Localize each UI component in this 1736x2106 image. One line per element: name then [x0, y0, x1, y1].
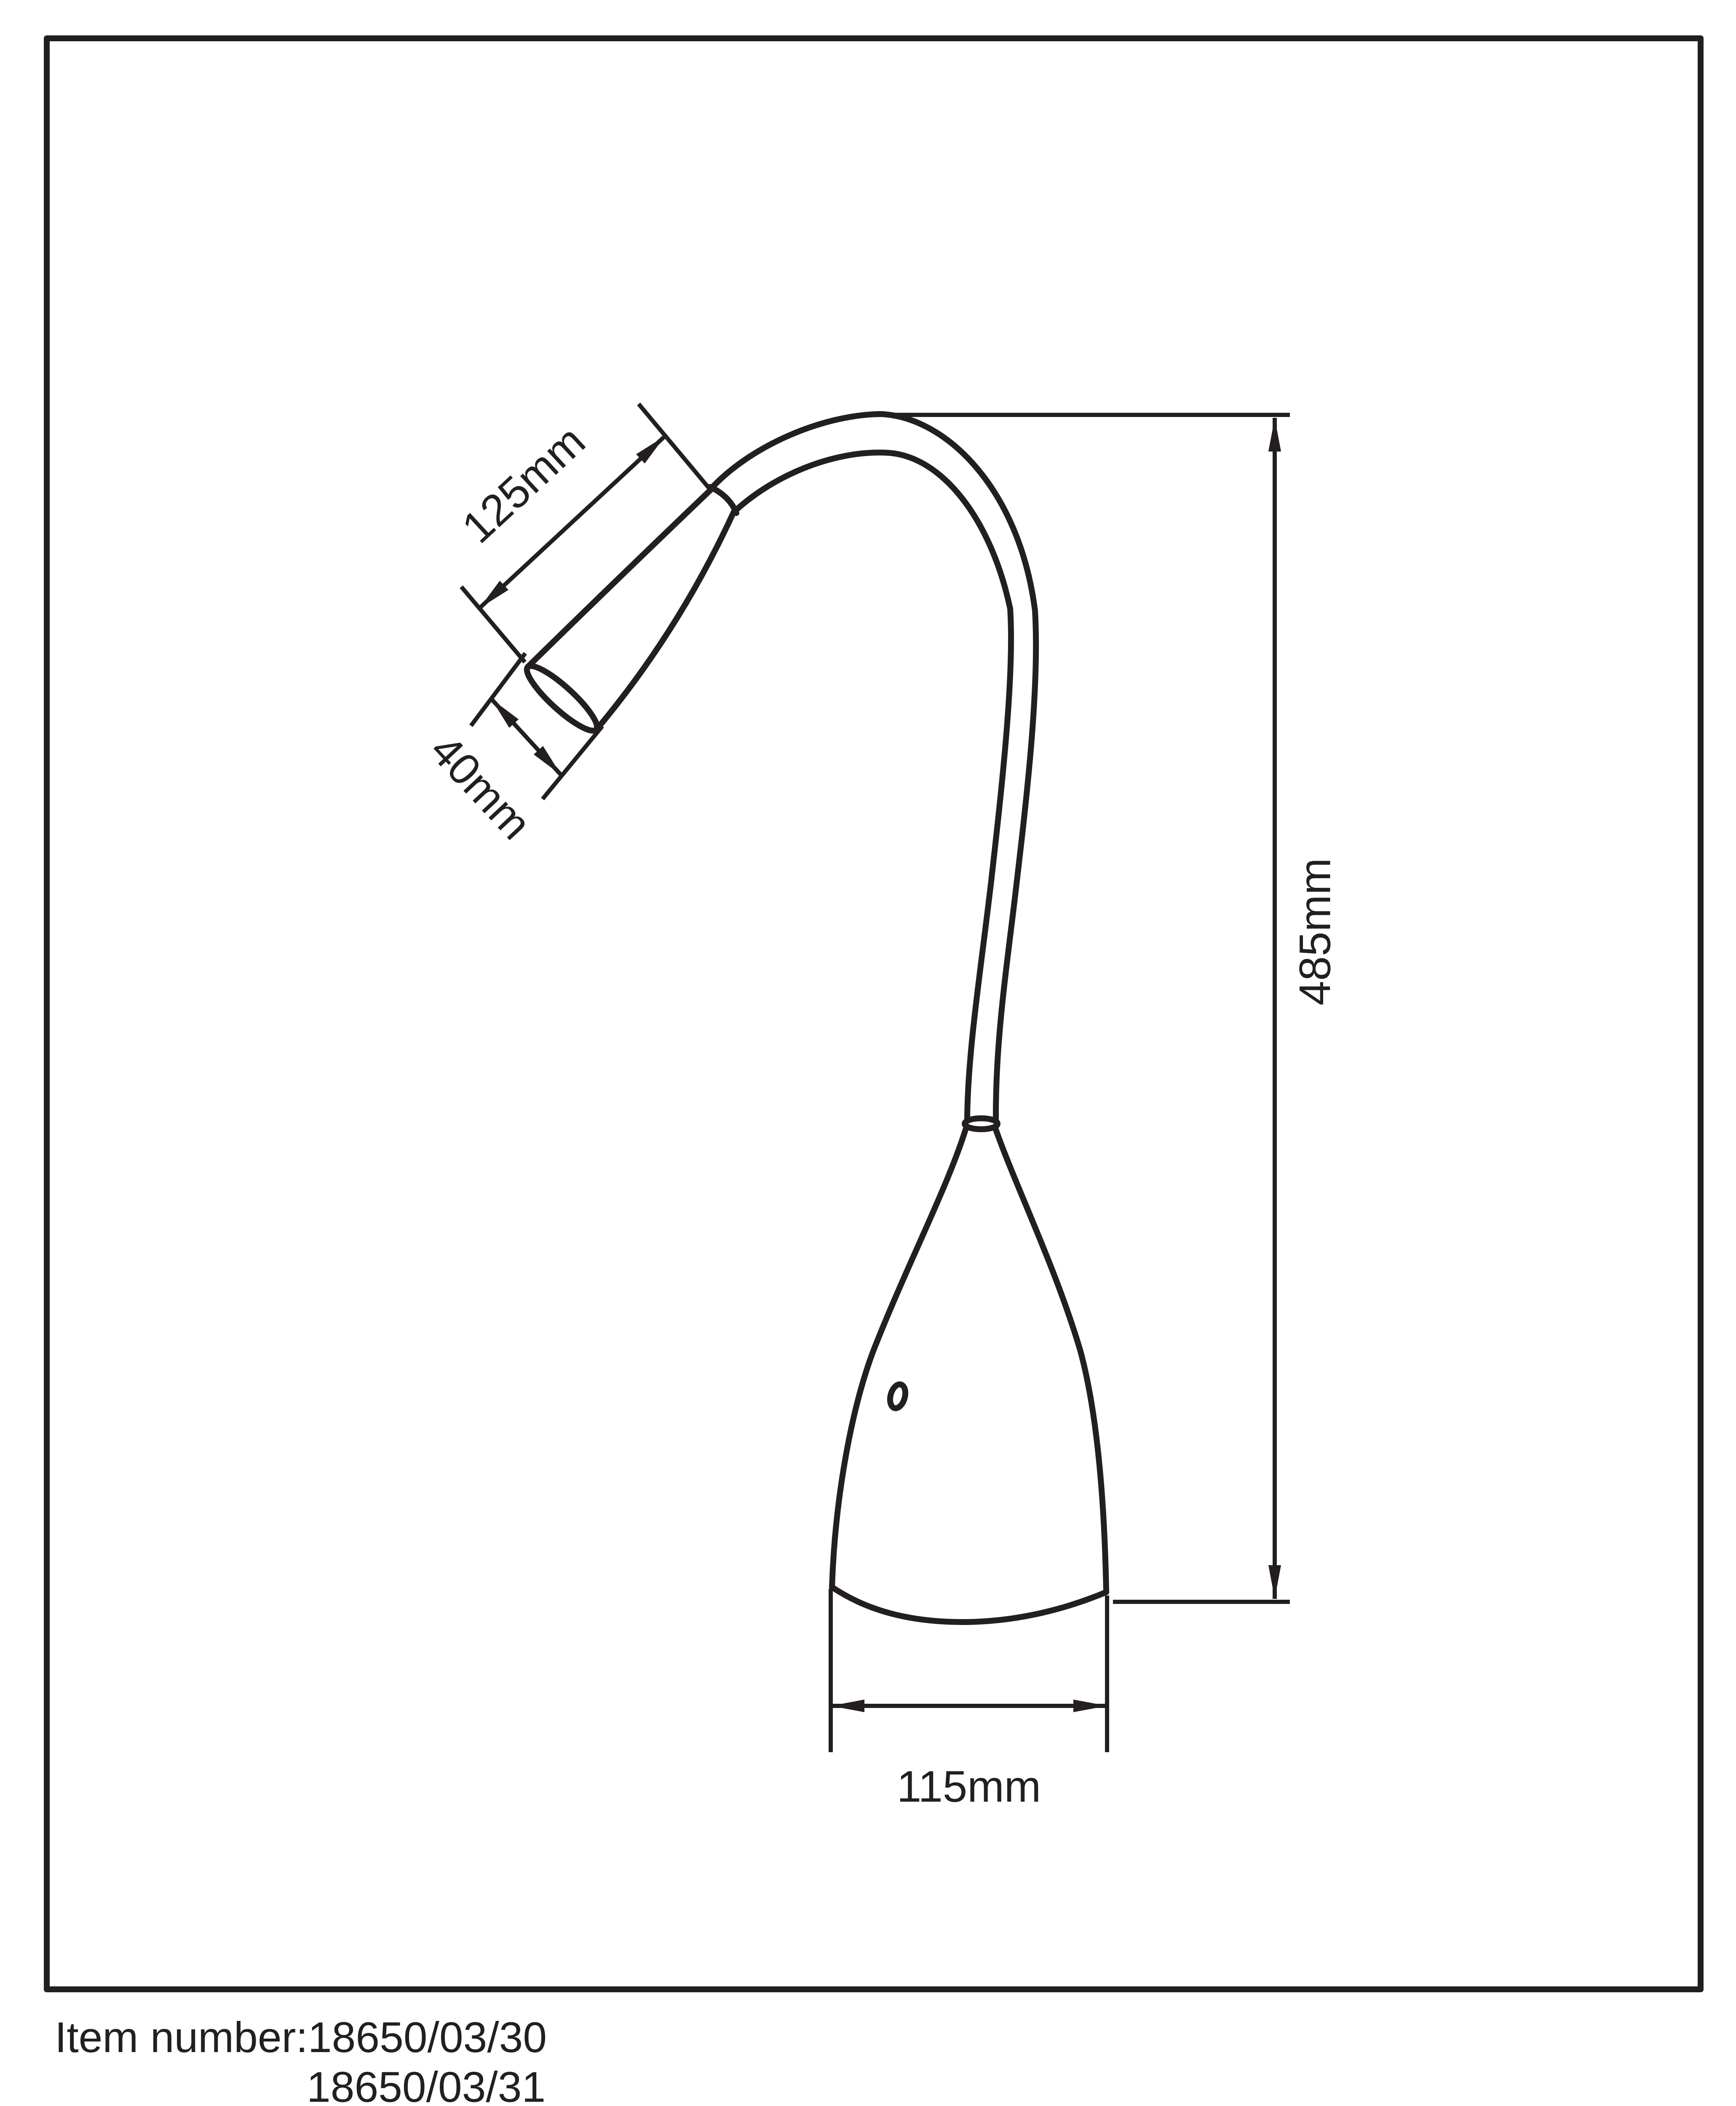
- base-bottom-outline: [832, 1587, 1106, 1622]
- head-diameter-label: 40mm: [421, 725, 541, 849]
- head-length-label: 125mm: [453, 416, 594, 553]
- lamp-head-upper-edge: [528, 489, 711, 667]
- extension-line: [471, 653, 525, 726]
- arrowhead: [1268, 1565, 1281, 1599]
- touch-switch-icon: [888, 1383, 908, 1410]
- dimension-total-height: 485mm: [873, 415, 1340, 1602]
- technical-drawing-canvas: 125mm 40mm 485mm 115mm: [0, 0, 1736, 2106]
- gooseneck-outer-line: [711, 414, 1036, 1121]
- footer: Item number:18650/03/30 18650/03/31: [55, 2013, 547, 2106]
- lamp-line-art: [520, 414, 1106, 1622]
- arrowhead: [1268, 418, 1281, 452]
- dimension-head-diameter: 40mm: [421, 653, 602, 849]
- base-left-outline: [832, 1130, 966, 1587]
- item-number-line-1: Item number:18650/03/30: [55, 2013, 547, 2061]
- item-number-value-2: 18650/03/31: [307, 2063, 546, 2106]
- item-number-value-1: 18650/03/30: [308, 2013, 547, 2061]
- gooseneck-inner-line: [735, 452, 1011, 1120]
- drawing-border: [47, 38, 1701, 1989]
- drawing-sheet: 125mm 40mm 485mm 115mm: [0, 0, 1736, 2106]
- arrowhead: [831, 1700, 864, 1712]
- item-number-label: Item number:: [55, 2013, 308, 2061]
- arrowhead: [1073, 1700, 1107, 1712]
- base-right-outline: [996, 1130, 1106, 1592]
- total-height-label: 485mm: [1291, 858, 1340, 1005]
- lamp-head-seam: [710, 487, 736, 513]
- base-diameter-label: 115mm: [897, 1762, 1041, 1812]
- lamp-head-opening: [520, 659, 604, 738]
- base-neck-seam: [965, 1118, 998, 1129]
- lamp-head-lower-edge: [596, 512, 734, 730]
